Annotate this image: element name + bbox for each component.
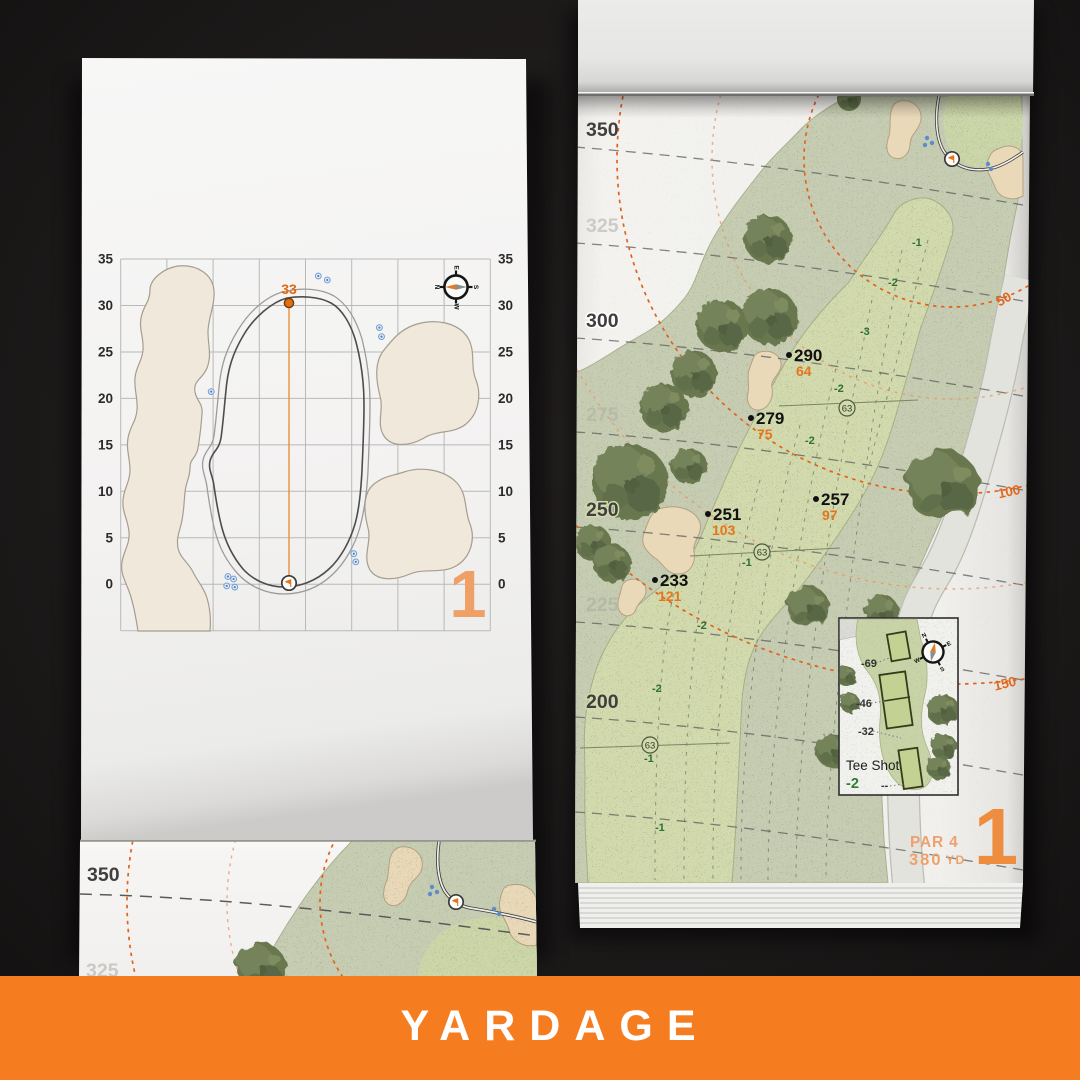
svg-text:10: 10	[498, 484, 513, 499]
svg-text:-2: -2	[652, 683, 662, 695]
svg-text:S: S	[472, 285, 479, 290]
svg-text:-2: -2	[697, 620, 707, 632]
svg-text:33: 33	[281, 281, 297, 297]
svg-text:63: 63	[842, 404, 853, 415]
svg-text:15: 15	[98, 437, 114, 452]
svg-text:-2: -2	[888, 277, 898, 289]
svg-text:30: 30	[498, 298, 513, 313]
svg-text:380: 380	[909, 851, 943, 869]
svg-text:-2: -2	[805, 435, 815, 447]
svg-text:20: 20	[98, 391, 113, 406]
svg-text:5: 5	[105, 530, 113, 545]
svg-text:-1: -1	[912, 237, 922, 249]
svg-text:75: 75	[757, 426, 773, 442]
svg-text:350: 350	[586, 119, 619, 141]
svg-text:35: 35	[498, 252, 514, 267]
svg-text:YD: YD	[946, 853, 966, 867]
svg-text:-3: -3	[860, 326, 870, 338]
svg-text:300: 300	[586, 310, 619, 332]
svg-text:325: 325	[586, 215, 619, 237]
svg-text:350: 350	[87, 864, 120, 886]
svg-text:N: N	[433, 285, 440, 290]
svg-text:0: 0	[498, 577, 506, 592]
svg-text:YARDAGE: YARDAGE	[400, 1002, 709, 1050]
svg-text:30: 30	[98, 298, 113, 313]
svg-text:10: 10	[98, 484, 113, 499]
svg-text:-32: -32	[858, 726, 874, 738]
svg-text:1: 1	[974, 792, 1019, 881]
svg-text:15: 15	[498, 437, 514, 452]
svg-text:35: 35	[98, 252, 114, 267]
svg-text:W: W	[453, 303, 460, 310]
svg-text:-1: -1	[644, 753, 654, 765]
svg-text:-2: -2	[834, 383, 844, 395]
svg-text:1: 1	[449, 557, 486, 632]
svg-text:63: 63	[757, 548, 768, 559]
svg-text:20: 20	[498, 391, 513, 406]
svg-text:-1: -1	[655, 822, 665, 834]
svg-text:5: 5	[498, 530, 506, 545]
svg-text:-46: -46	[856, 698, 872, 710]
svg-text:275: 275	[586, 404, 619, 426]
svg-text:97: 97	[822, 507, 838, 523]
svg-text:25: 25	[498, 345, 514, 360]
svg-text:-1: -1	[742, 557, 752, 569]
svg-text:Tee Shot: Tee Shot	[846, 758, 900, 773]
svg-text:--: --	[881, 780, 889, 792]
svg-text:225: 225	[586, 594, 619, 616]
svg-text:63: 63	[645, 741, 656, 752]
svg-text:0: 0	[105, 577, 113, 592]
svg-text:200: 200	[586, 691, 619, 713]
svg-text:PAR 4: PAR 4	[910, 834, 959, 851]
svg-text:103: 103	[712, 522, 736, 538]
svg-text:250: 250	[586, 499, 619, 521]
svg-text:E: E	[453, 265, 460, 270]
svg-text:25: 25	[98, 345, 114, 360]
svg-text:-2: -2	[846, 776, 859, 792]
svg-text:121: 121	[658, 588, 682, 604]
svg-text:64: 64	[796, 363, 812, 379]
svg-text:-69: -69	[861, 658, 877, 670]
